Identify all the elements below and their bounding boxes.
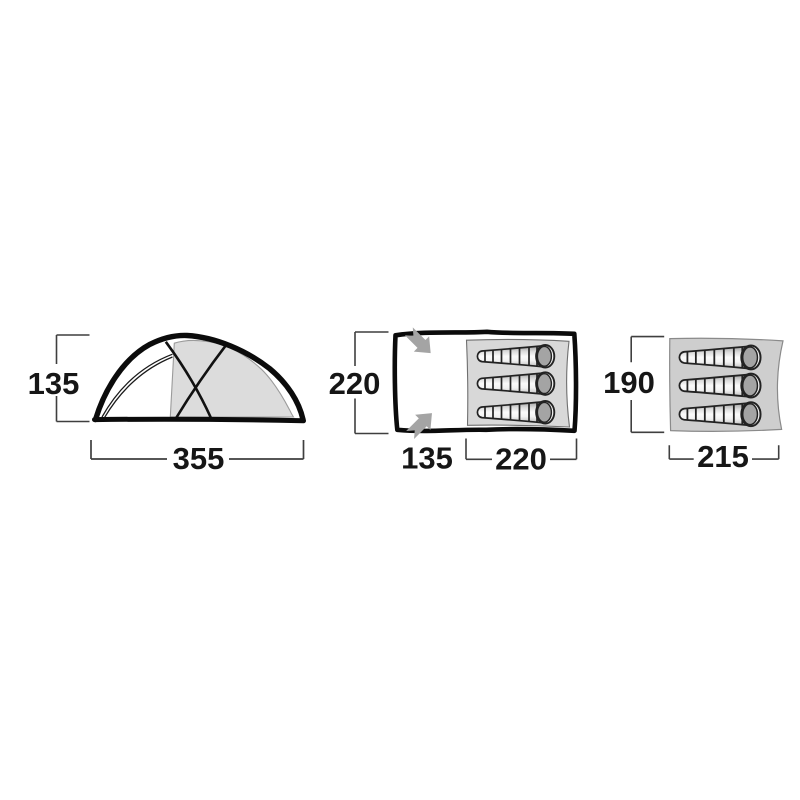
svg-text:135: 135 xyxy=(28,366,80,401)
svg-text:215: 215 xyxy=(697,439,749,474)
svg-text:220: 220 xyxy=(329,366,381,401)
svg-text:220: 220 xyxy=(495,442,547,477)
svg-text:355: 355 xyxy=(173,441,225,476)
svg-text:190: 190 xyxy=(603,365,655,400)
svg-text:135: 135 xyxy=(401,441,453,476)
